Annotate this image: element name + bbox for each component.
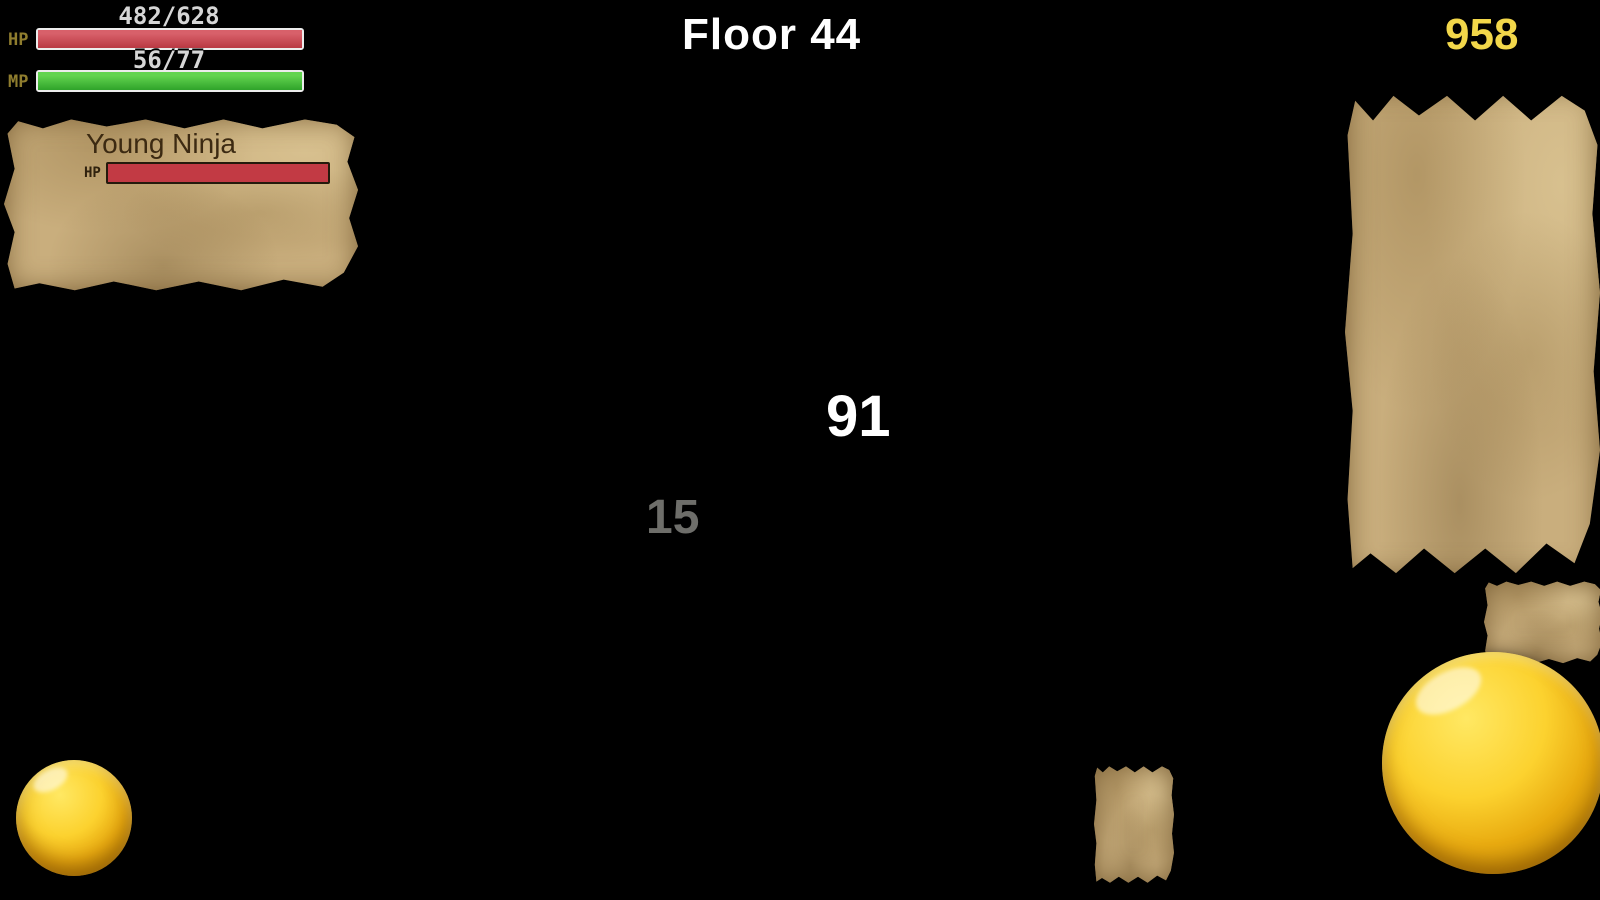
enemy-name: Young Ninja: [86, 128, 236, 160]
hp-label: HP: [8, 30, 28, 50]
enemy-stats-grid: [16, 196, 350, 286]
gear-icon: [16, 760, 132, 876]
stairs-sign[interactable]: [1094, 764, 1174, 884]
inventory-button[interactable]: [1382, 652, 1600, 874]
settings-button[interactable]: [16, 760, 132, 876]
damage-popup-fading: 15: [646, 494, 699, 542]
player-status-bars: 482/628 HP 56/77 MP: [0, 0, 322, 100]
enemy-info-panel: Young Ninja HP: [4, 116, 358, 292]
enemy-hp-bar: [106, 162, 330, 184]
skill-panel: [1345, 86, 1600, 578]
enemy-hp-label: HP: [84, 165, 101, 181]
floor-title: Floor 44: [682, 10, 861, 60]
mp-label: MP: [8, 72, 28, 92]
mp-bar: [36, 70, 304, 92]
game-screen: 15 91 Floor 44 958 482/628 HP 56/77 MP Y…: [0, 0, 1600, 900]
gold-amount: 958: [1445, 10, 1518, 60]
backpack-icon: [1382, 652, 1600, 874]
hp-value: 482/628: [36, 2, 302, 30]
damage-popup: 91: [826, 388, 891, 446]
gold-counter: 958: [1435, 10, 1518, 60]
